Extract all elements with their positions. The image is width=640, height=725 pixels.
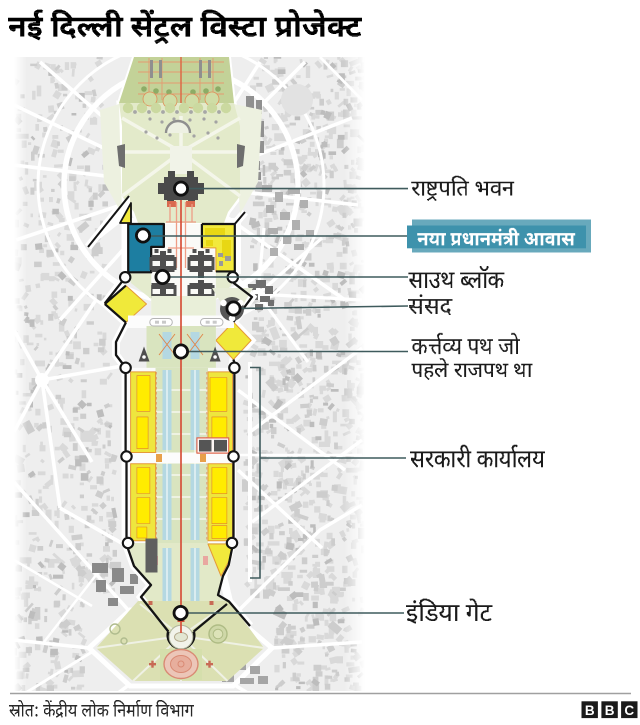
svg-text:B: B	[605, 703, 615, 718]
svg-text:B: B	[585, 703, 595, 718]
svg-text:C: C	[624, 703, 634, 718]
